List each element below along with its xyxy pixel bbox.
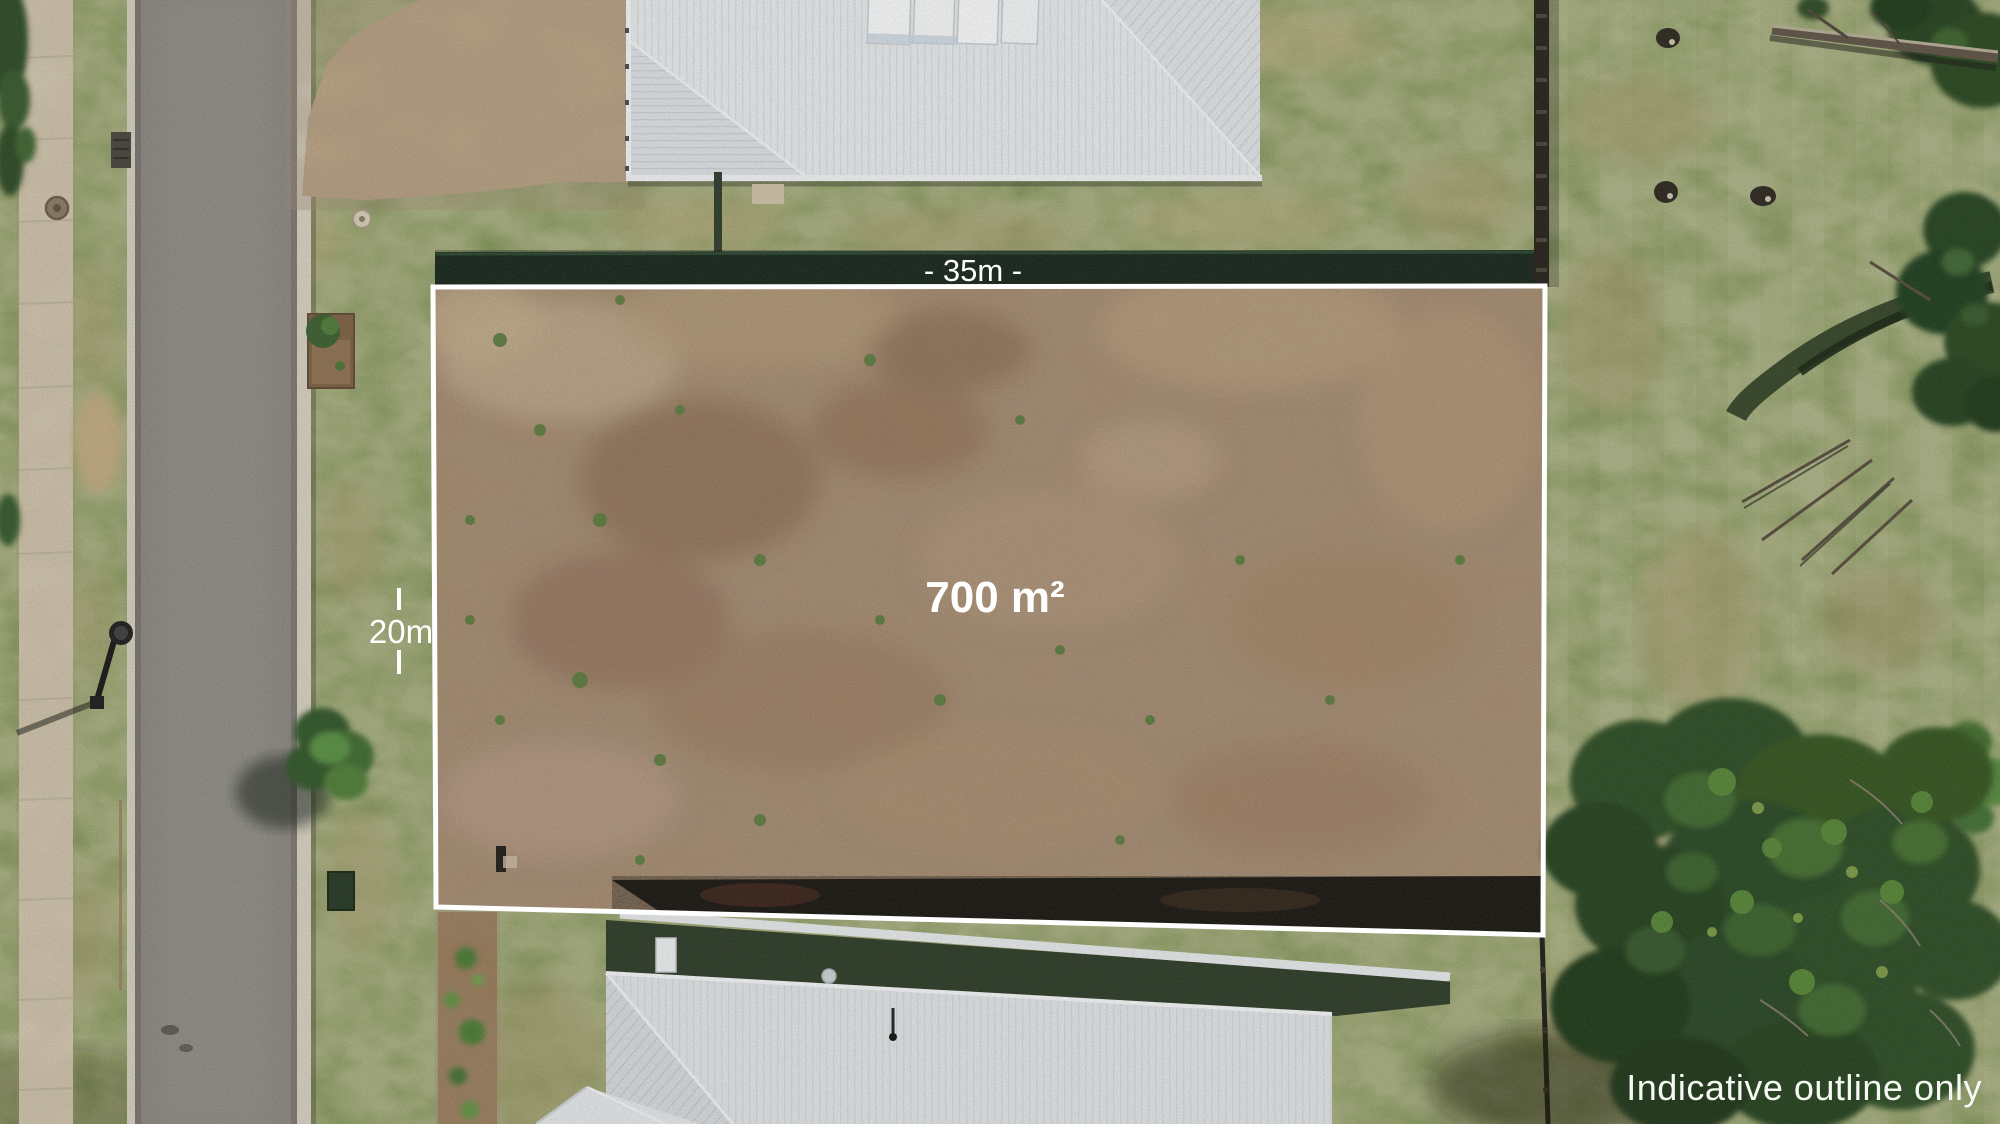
aerial-photo: - 35m - 20m 700 m² Indicative outline on…	[0, 0, 2000, 1124]
film-grain-light	[0, 0, 2000, 1124]
disclaimer-label: Indicative outline only	[1626, 1067, 1982, 1108]
depth-dimension-label: 20m	[369, 613, 433, 650]
dimension-tick-top	[397, 588, 401, 610]
aerial-photo-canvas: - 35m - 20m 700 m² Indicative outline on…	[0, 0, 2000, 1124]
lot-area-label: 700 m²	[925, 573, 1064, 622]
frontage-dimension-label: - 35m -	[924, 253, 1022, 288]
dimension-tick-bottom	[397, 650, 401, 674]
